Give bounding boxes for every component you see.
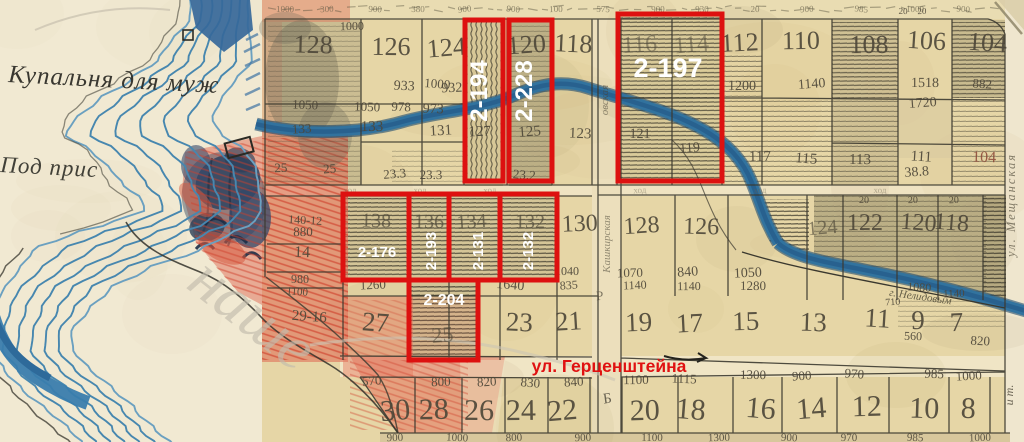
svg-text:980: 980 (291, 272, 309, 286)
svg-text:800: 800 (431, 374, 451, 390)
svg-text:10: 10 (909, 392, 940, 426)
svg-text:2-204: 2-204 (424, 292, 465, 309)
svg-text:1000: 1000 (955, 367, 982, 384)
svg-text:100: 100 (549, 4, 563, 14)
svg-text:1300: 1300 (740, 367, 766, 382)
svg-text:126: 126 (683, 214, 720, 241)
svg-text:933: 933 (393, 78, 415, 94)
svg-text:900: 900 (457, 3, 472, 15)
svg-text:25: 25 (274, 160, 287, 175)
svg-text:14: 14 (795, 391, 828, 426)
svg-text:128: 128 (623, 212, 661, 240)
svg-text:835: 835 (559, 277, 578, 292)
svg-text:900: 900 (386, 432, 403, 442)
svg-text:820: 820 (476, 373, 496, 389)
svg-text:21: 21 (554, 305, 583, 337)
svg-text:18: 18 (675, 392, 707, 427)
svg-text:20: 20 (750, 4, 760, 14)
svg-text:133: 133 (291, 120, 312, 136)
svg-text:118: 118 (554, 28, 593, 59)
svg-text:800: 800 (505, 432, 522, 442)
svg-text:131: 131 (429, 122, 452, 139)
svg-text:300: 300 (320, 4, 334, 15)
svg-text:130: 130 (561, 210, 598, 237)
svg-text:120: 120 (506, 29, 547, 61)
svg-text:26: 26 (464, 394, 494, 427)
svg-text:133: 133 (361, 119, 384, 135)
svg-text:820: 820 (970, 332, 990, 348)
svg-text:122: 122 (847, 210, 883, 236)
svg-text:104: 104 (972, 149, 996, 167)
svg-text:120: 120 (900, 209, 938, 238)
svg-text:ход: ход (753, 185, 767, 195)
svg-text:17: 17 (675, 307, 703, 338)
svg-text:Кашкирская: Кашкирская (601, 215, 613, 274)
svg-text:575: 575 (596, 4, 610, 15)
svg-text:138: 138 (361, 210, 391, 233)
svg-text:2-197: 2-197 (633, 53, 702, 83)
svg-text:1100: 1100 (641, 432, 663, 442)
svg-text:1518: 1518 (911, 76, 939, 91)
svg-text:28: 28 (418, 393, 449, 427)
svg-text:20: 20 (949, 195, 959, 206)
svg-text:25: 25 (323, 161, 337, 177)
svg-text:113: 113 (849, 152, 871, 168)
svg-text:19: 19 (625, 307, 653, 338)
svg-text:985: 985 (854, 3, 869, 15)
svg-text:106: 106 (906, 25, 947, 56)
svg-text:124: 124 (426, 31, 467, 63)
svg-text:126: 126 (371, 32, 410, 61)
svg-text:7: 7 (949, 307, 964, 338)
svg-text:973: 973 (422, 101, 444, 117)
svg-text:25: 25 (430, 321, 454, 348)
svg-text:380: 380 (411, 4, 425, 14)
svg-text:880: 880 (293, 224, 313, 239)
svg-text:1050: 1050 (354, 98, 381, 114)
svg-text:1000: 1000 (969, 432, 992, 442)
svg-text:111: 111 (910, 148, 932, 165)
svg-text:119: 119 (679, 140, 701, 157)
svg-text:985: 985 (924, 366, 944, 382)
svg-text:128: 128 (293, 29, 333, 59)
svg-text:900: 900 (506, 3, 521, 14)
svg-text:900: 900 (791, 367, 811, 383)
svg-text:23.3: 23.3 (420, 167, 443, 182)
svg-text:Под прис: Под прис (0, 152, 99, 182)
svg-text:112: 112 (720, 27, 759, 58)
svg-text:1280: 1280 (740, 278, 766, 293)
svg-text:2-228: 2-228 (511, 60, 538, 121)
svg-text:2-131: 2-131 (470, 232, 487, 270)
svg-text:27: 27 (361, 306, 390, 338)
svg-text:13: 13 (799, 307, 827, 338)
svg-text:24: 24 (506, 394, 536, 427)
svg-text:ход: ход (873, 185, 886, 195)
svg-text:560: 560 (904, 329, 922, 343)
svg-text:14: 14 (294, 244, 310, 261)
svg-text:115: 115 (795, 150, 818, 168)
svg-text:900: 900 (368, 4, 382, 15)
svg-text:20: 20 (629, 394, 660, 428)
svg-text:Р: Р (596, 288, 604, 303)
svg-text:и т.: и т. (1002, 385, 1016, 406)
svg-text:900: 900 (574, 432, 591, 442)
svg-text:1720: 1720 (908, 95, 937, 112)
svg-text:121: 121 (629, 127, 650, 142)
svg-text:1140: 1140 (677, 279, 701, 293)
svg-text:ход: ход (633, 185, 647, 195)
svg-text:108: 108 (849, 30, 888, 59)
svg-text:38.8: 38.8 (904, 164, 930, 181)
svg-text:15: 15 (732, 306, 760, 337)
svg-text:1140: 1140 (623, 278, 647, 293)
svg-text:1300: 1300 (708, 432, 731, 442)
svg-text:2-176: 2-176 (358, 244, 396, 261)
svg-text:1200: 1200 (728, 79, 756, 94)
svg-text:12: 12 (851, 390, 882, 424)
svg-text:30: 30 (379, 393, 412, 428)
svg-text:2-132: 2-132 (520, 232, 537, 270)
svg-text:ул. Герценштейна: ул. Герценштейна (532, 356, 687, 376)
svg-text:125: 125 (518, 123, 542, 141)
svg-text:123: 123 (569, 126, 592, 143)
svg-text:136: 136 (414, 211, 444, 233)
svg-text:20: 20 (908, 195, 918, 206)
svg-text:970: 970 (844, 365, 865, 381)
svg-text:11: 11 (864, 302, 892, 334)
svg-text:132: 132 (515, 211, 545, 233)
svg-text:8: 8 (960, 392, 976, 425)
svg-text:900: 900 (956, 3, 971, 14)
svg-text:1000: 1000 (906, 4, 925, 14)
svg-text:110: 110 (782, 26, 821, 56)
svg-text:ул. Мещанская: ул. Мещанская (1004, 153, 1018, 259)
svg-text:117: 117 (749, 149, 772, 165)
svg-text:932: 932 (441, 81, 463, 97)
svg-text:1000: 1000 (446, 432, 469, 442)
svg-text:1000: 1000 (340, 19, 364, 33)
svg-text:23.3: 23.3 (383, 165, 407, 182)
svg-text:985: 985 (907, 432, 924, 442)
svg-text:20: 20 (859, 195, 869, 206)
svg-text:978: 978 (391, 99, 411, 115)
svg-text:124: 124 (807, 216, 839, 240)
svg-text:570: 570 (361, 372, 382, 389)
svg-text:2-194: 2-194 (466, 60, 493, 122)
svg-text:1050: 1050 (292, 97, 318, 113)
svg-text:104: 104 (967, 27, 1008, 59)
svg-text:овская: овская (599, 85, 611, 116)
svg-text:900: 900 (800, 4, 815, 15)
svg-text:23: 23 (505, 306, 533, 337)
svg-text:16: 16 (744, 391, 777, 426)
svg-text:1140: 1140 (797, 76, 826, 93)
svg-text:127: 127 (468, 123, 492, 140)
svg-text:134: 134 (456, 210, 487, 234)
svg-text:970: 970 (841, 432, 858, 442)
svg-text:1000: 1000 (276, 4, 295, 14)
svg-text:900: 900 (781, 432, 799, 442)
svg-text:118: 118 (933, 209, 970, 238)
svg-text:882: 882 (972, 75, 992, 91)
svg-text:830: 830 (520, 374, 541, 391)
svg-text:2-193: 2-193 (423, 232, 440, 270)
svg-text:22: 22 (546, 393, 579, 428)
